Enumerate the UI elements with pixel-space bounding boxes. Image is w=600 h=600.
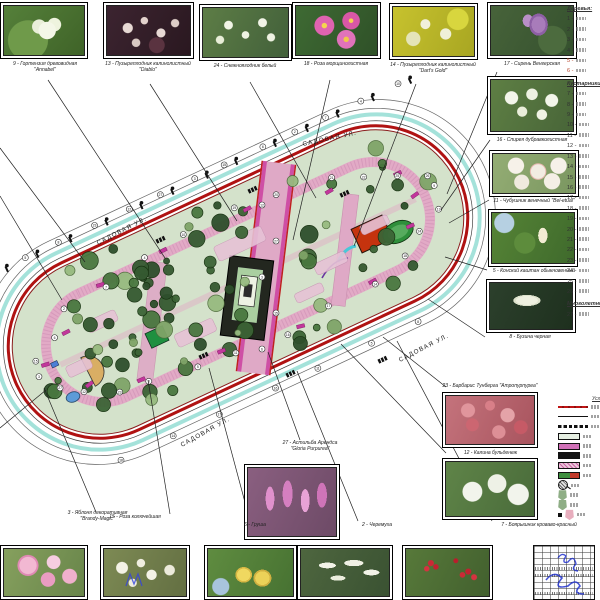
tree-symbol (212, 214, 229, 231)
species-item: 16 - (567, 183, 600, 193)
tree-symbol (172, 295, 180, 303)
tree-symbol (67, 300, 80, 313)
existing-tree-symbol (336, 109, 340, 113)
species-item: 11 - (567, 131, 600, 141)
lawn-swatch (558, 433, 580, 440)
lilac-photo-image (490, 5, 574, 56)
plant-tag-number: 3 (38, 375, 40, 379)
tree-symbol (214, 202, 222, 210)
tree-symbol (185, 223, 193, 231)
plant-tag-number: 13 (437, 208, 441, 212)
tree-symbol (83, 318, 97, 332)
plant-tag-number: 7 (105, 285, 107, 289)
plant-tag-number: 16 (274, 386, 278, 390)
tree-symbol (378, 228, 395, 245)
tree-symbol (102, 356, 113, 367)
approval-stamp (528, 540, 598, 600)
plant-tag-number: 23 (118, 390, 122, 394)
physocarpus-diablo-photo-image (106, 5, 191, 56)
plant-tag-number: 2 (294, 130, 296, 134)
pink-paving-swatch (558, 462, 580, 469)
entrance-mark (384, 356, 388, 361)
existing-tree-symbol (305, 124, 309, 128)
tree-symbol (194, 338, 206, 350)
species-item: 13 - (567, 152, 600, 162)
philadelphus-photo-image (492, 153, 576, 194)
plant-tag-number: 2 (63, 307, 65, 311)
tree-symbol (160, 287, 172, 299)
legend-items (558, 402, 600, 520)
plant-tag-number: 15 (274, 311, 278, 315)
species-item: 26 - (567, 287, 600, 297)
blue-mark-scribble (126, 574, 142, 586)
plant-tag-number: 27 (158, 193, 162, 197)
leader-line (268, 352, 300, 440)
plant-tag-number: 8 (57, 241, 59, 245)
hatched-circle-icon (558, 480, 568, 490)
tree-symbol (156, 321, 173, 338)
plant-tag-number: 4 (144, 256, 146, 260)
tree-symbol (225, 285, 234, 294)
plant-tag-number: 8 (417, 320, 419, 324)
plant-tag-number: 17 (327, 304, 331, 308)
tree-symbol (401, 202, 408, 209)
green-shield-icon (558, 490, 567, 501)
tree-symbol (293, 336, 307, 350)
caption-physocarpus-darts-gold: 14 - Пузыреплодник калинолистный"Dart's … (384, 62, 482, 74)
elderberry-photo-image (489, 282, 573, 330)
tree-symbol (189, 323, 203, 337)
plant-tag-number: 11 (234, 351, 238, 355)
tree-symbol (313, 324, 320, 331)
legend-label (591, 415, 599, 419)
birdcherry-photo-image (300, 548, 390, 597)
species-item: 12 - (567, 141, 600, 151)
species-item: 5 - (567, 56, 600, 66)
plant-tag-number: 12 (82, 390, 86, 394)
legend-row (558, 431, 600, 441)
photo-astilbe (244, 464, 340, 540)
species-item: 8 - (567, 100, 600, 110)
tree-symbol (164, 258, 170, 264)
existing-tree-symbol (5, 264, 9, 268)
tree-symbol (299, 251, 308, 260)
tree-symbol (235, 308, 248, 321)
legend-row (558, 500, 600, 510)
tree-symbol (192, 207, 203, 218)
existing-tree-symbol (36, 250, 40, 254)
plant-tag-number: 7 (325, 116, 327, 120)
hawthorn-photo-image (405, 548, 490, 597)
legend-label (571, 484, 579, 488)
entrance-mark (381, 357, 385, 362)
species-item: 22 - (567, 245, 600, 255)
species-item: 10 - (567, 120, 600, 130)
tree-symbol (359, 264, 367, 272)
blue-mark (120, 566, 150, 596)
caption-hydrangea: 9 - Гортензия древовидная"Annabel" (0, 61, 95, 73)
plant-tag-number: 3 (261, 275, 263, 279)
plant-tag-number: 10 (396, 82, 400, 86)
plant-tag-number: 18 (119, 459, 123, 463)
tree-symbol (80, 252, 98, 270)
plant-tag-number: 21 (330, 176, 334, 180)
plant-tag-number: 27 (274, 239, 278, 243)
species-item: 3 - (567, 35, 600, 45)
legend-row (558, 510, 600, 520)
tree-symbol (327, 320, 341, 334)
photo-hawthorn (402, 545, 493, 600)
tree-symbol (143, 282, 150, 289)
legend-row (558, 490, 600, 500)
caption-viburnum: 12 - Калина бульденеж (438, 450, 543, 456)
plant-tag-number: 5 (24, 256, 26, 260)
existing-tree-symbol (273, 139, 277, 143)
species-item: 17 - (567, 193, 600, 203)
legend-label (583, 474, 591, 478)
legend-row (558, 480, 600, 490)
species-item: 9 - (567, 110, 600, 120)
species-item: 2 - (567, 25, 600, 35)
species-item: 21 - (567, 235, 600, 245)
plant-tag-number: 23 (93, 224, 97, 228)
signature-scribble (558, 554, 578, 571)
pear-photo-image (207, 548, 294, 597)
existing-tree-symbol (105, 217, 109, 221)
species-section-title: Деревья: (567, 4, 600, 14)
legend-title: Условные обозначения (592, 396, 600, 402)
plant-tag-number: 18 (403, 254, 407, 258)
plant-tag-number: 6 (54, 336, 56, 340)
leader-line (0, 148, 85, 262)
species-list: Деревья:1 - 2 - 3 - 4 - 5 - 6 - Кустарни… (567, 2, 600, 320)
solid-line-icon (558, 416, 588, 417)
photo-hydrangea (0, 2, 88, 59)
tree-symbol (300, 225, 318, 243)
rosa-rugosa-photo-image (295, 5, 378, 56)
street-label-right: САДОВАЯ УЛ. (398, 332, 450, 363)
tree-symbol (135, 266, 149, 280)
tree-symbol (129, 338, 137, 346)
entrance-mark (377, 359, 381, 364)
drawing-sheet: 9132418141716115823122731562741019202122… (0, 0, 600, 600)
pink-shield-icon (565, 509, 574, 520)
legend-row (558, 412, 600, 422)
caption-elderberry: 8 - Бузина черная (480, 334, 580, 340)
plant-tag-number: 14 (171, 434, 175, 438)
tree-symbol (104, 318, 115, 329)
plant-tag-number: 9 (433, 184, 435, 188)
caption-pear: 6 - Груша (225, 522, 285, 528)
tree-symbol (386, 276, 400, 290)
green-shield-icon (558, 499, 567, 510)
caption-astilbe: 27 - Астильба Арендса"Gloria Purpurea" (250, 440, 370, 452)
tree-symbol (65, 265, 75, 275)
photo-spirea (487, 76, 577, 135)
species-section-title: Кустарники: (567, 79, 600, 89)
tree-symbol (163, 265, 173, 275)
tree-symbol (138, 307, 147, 316)
legend-label (570, 493, 578, 497)
photo-rosa-rugosa (292, 2, 381, 59)
tree-symbol (109, 245, 118, 254)
tree-symbol (235, 226, 247, 238)
hydrangea-photo-image (3, 5, 85, 56)
plant-tag-number: 6 (261, 347, 263, 351)
plant-tag-number: 4 (360, 99, 362, 103)
legend-label (591, 405, 599, 409)
legend-row (558, 461, 600, 471)
tree-symbol (73, 314, 83, 324)
legend-row (558, 471, 600, 481)
tree-symbol (93, 345, 103, 355)
tree-symbol (127, 287, 142, 302)
photo-snowberry (199, 4, 292, 61)
photo-pear (204, 545, 297, 600)
existing-tree-symbol (140, 201, 144, 205)
plant-tag-number: 6 (262, 145, 264, 149)
tree-symbol (188, 230, 205, 247)
photo-physocarpus-diablo (103, 2, 194, 59)
plant-tag-number: 20 (274, 193, 278, 197)
plant-tag-number: 5 (371, 342, 373, 346)
viburnum-photo-image (445, 461, 535, 517)
tree-symbol (180, 358, 187, 365)
plant-tag-number: 26 (426, 174, 430, 178)
legend-row (558, 422, 600, 432)
photo-philadelphus (489, 150, 579, 197)
red-dashed-line-icon (558, 406, 588, 409)
caption-rose-spinosissima: 15 - Роза колючейшая (80, 514, 190, 520)
plant-tag-number: 11 (316, 367, 320, 371)
legend-row (558, 441, 600, 451)
tree-symbol (392, 179, 404, 191)
plant-tag-number: 15 (34, 359, 38, 363)
tree-symbol (240, 277, 249, 286)
existing-tree-symbol (171, 186, 175, 190)
species-item: 1 - (567, 14, 600, 24)
leader-line (341, 344, 446, 453)
photo-elderberry (486, 279, 576, 333)
existing-tree-symbol (408, 76, 412, 80)
photo-viburnum (442, 458, 538, 520)
plant-tag-number: 5 (197, 365, 199, 369)
existing-tree-symbol (234, 157, 238, 161)
species-item: 6 - (567, 66, 600, 76)
photo-birdcherry (297, 545, 393, 600)
existing-tree-symbol (69, 234, 73, 238)
black-dashed-line-icon (558, 425, 588, 427)
tree-symbol (96, 397, 110, 411)
tree-symbol (204, 256, 216, 268)
green-red-swatch (558, 472, 580, 479)
species-item: 4 - (567, 46, 600, 56)
legend-label (583, 464, 591, 468)
plant-tag-number: 3 (194, 177, 196, 181)
plant-tag-number: 10 (181, 233, 185, 237)
plant-tag-number: 24 (417, 230, 421, 234)
caption-snowberry: 24 - Снежноягодник белый (194, 63, 296, 69)
photo-lilac (487, 2, 577, 59)
plant-tag-number: 16 (286, 333, 290, 337)
caption-birdcherry: 2 - Черемуха (342, 522, 412, 528)
plant-tag-number: 14 (373, 282, 377, 286)
caption-rosa-rugosa: 18 - Роза морщинолистная (287, 61, 385, 67)
tree-symbol (210, 282, 220, 292)
spirea-photo-image (490, 79, 574, 132)
photo-physocarpus-darts-gold (389, 3, 478, 60)
chestnut-photo-image (491, 212, 575, 264)
caption-hawthorn: 7 - Боярышник кроваво-красный (480, 522, 598, 528)
tree-symbol (55, 377, 62, 384)
caption-physocarpus-diablo: 13 - Пузыреплодник калинолистный"Diablo" (98, 61, 198, 73)
flowerbed-swatch (558, 443, 580, 450)
pavement-swatch (558, 452, 580, 459)
photo-apple (0, 545, 88, 600)
plant-tag-number: 12 (127, 207, 131, 211)
legend-row (558, 402, 600, 412)
plant-tag-number: 27 (58, 386, 62, 390)
tree-symbol (208, 295, 225, 312)
photo-barberry (442, 392, 538, 448)
species-item: 18 - (567, 204, 600, 214)
tree-symbol (235, 330, 241, 336)
species-item: 23 - (567, 256, 600, 266)
black-square-icon (558, 513, 562, 517)
tree-symbol (101, 383, 116, 398)
tree-symbol (370, 245, 378, 253)
species-item: 27 - (567, 310, 600, 320)
tree-symbol (168, 385, 178, 395)
species-section-title: Многолетники: (567, 299, 600, 309)
species-item: 19 - (567, 214, 600, 224)
legend-label (583, 444, 591, 448)
tree-symbol (116, 358, 130, 372)
legend: Условные обозначения (558, 396, 600, 520)
legend-label (583, 454, 591, 458)
tree-symbol (150, 300, 158, 308)
tree-symbol (129, 278, 139, 288)
barberry-photo-image (445, 395, 535, 445)
legend-label (570, 503, 578, 507)
legend-label (577, 513, 585, 517)
plant-tag-number: 19 (232, 206, 236, 210)
tree-symbol (287, 176, 298, 187)
physocarpus-darts-gold-photo-image (392, 6, 475, 57)
existing-tree-symbol (371, 93, 375, 97)
tree-symbol (408, 261, 418, 271)
plant-tag-number: 12 (260, 203, 264, 207)
species-item: 20 - (567, 225, 600, 235)
photo-chestnut (488, 209, 578, 267)
plant-tag-number: 25 (395, 174, 399, 178)
caption-barberry: 23 - Барбарис Тунберга "Атропурпуреа" (430, 383, 550, 389)
species-item: 15 - (567, 173, 600, 183)
tree-symbol (109, 340, 118, 349)
species-item: 7 - (567, 89, 600, 99)
legend-row (558, 451, 600, 461)
species-item: 24 - (567, 266, 600, 276)
plant-tag-number: 22 (362, 175, 366, 179)
species-item: 14 - (567, 162, 600, 172)
tree-symbol (135, 349, 142, 356)
tree-symbol (366, 185, 374, 193)
signature-scribble (546, 574, 584, 594)
legend-label (591, 425, 599, 429)
species-item: 25 - (567, 277, 600, 287)
snowberry-photo-image (202, 7, 289, 58)
apple-photo-image (3, 548, 85, 597)
tree-symbol (368, 140, 384, 156)
tree-symbol (322, 221, 330, 229)
legend-label (583, 435, 591, 439)
plant-tag-number: 15 (222, 163, 226, 167)
